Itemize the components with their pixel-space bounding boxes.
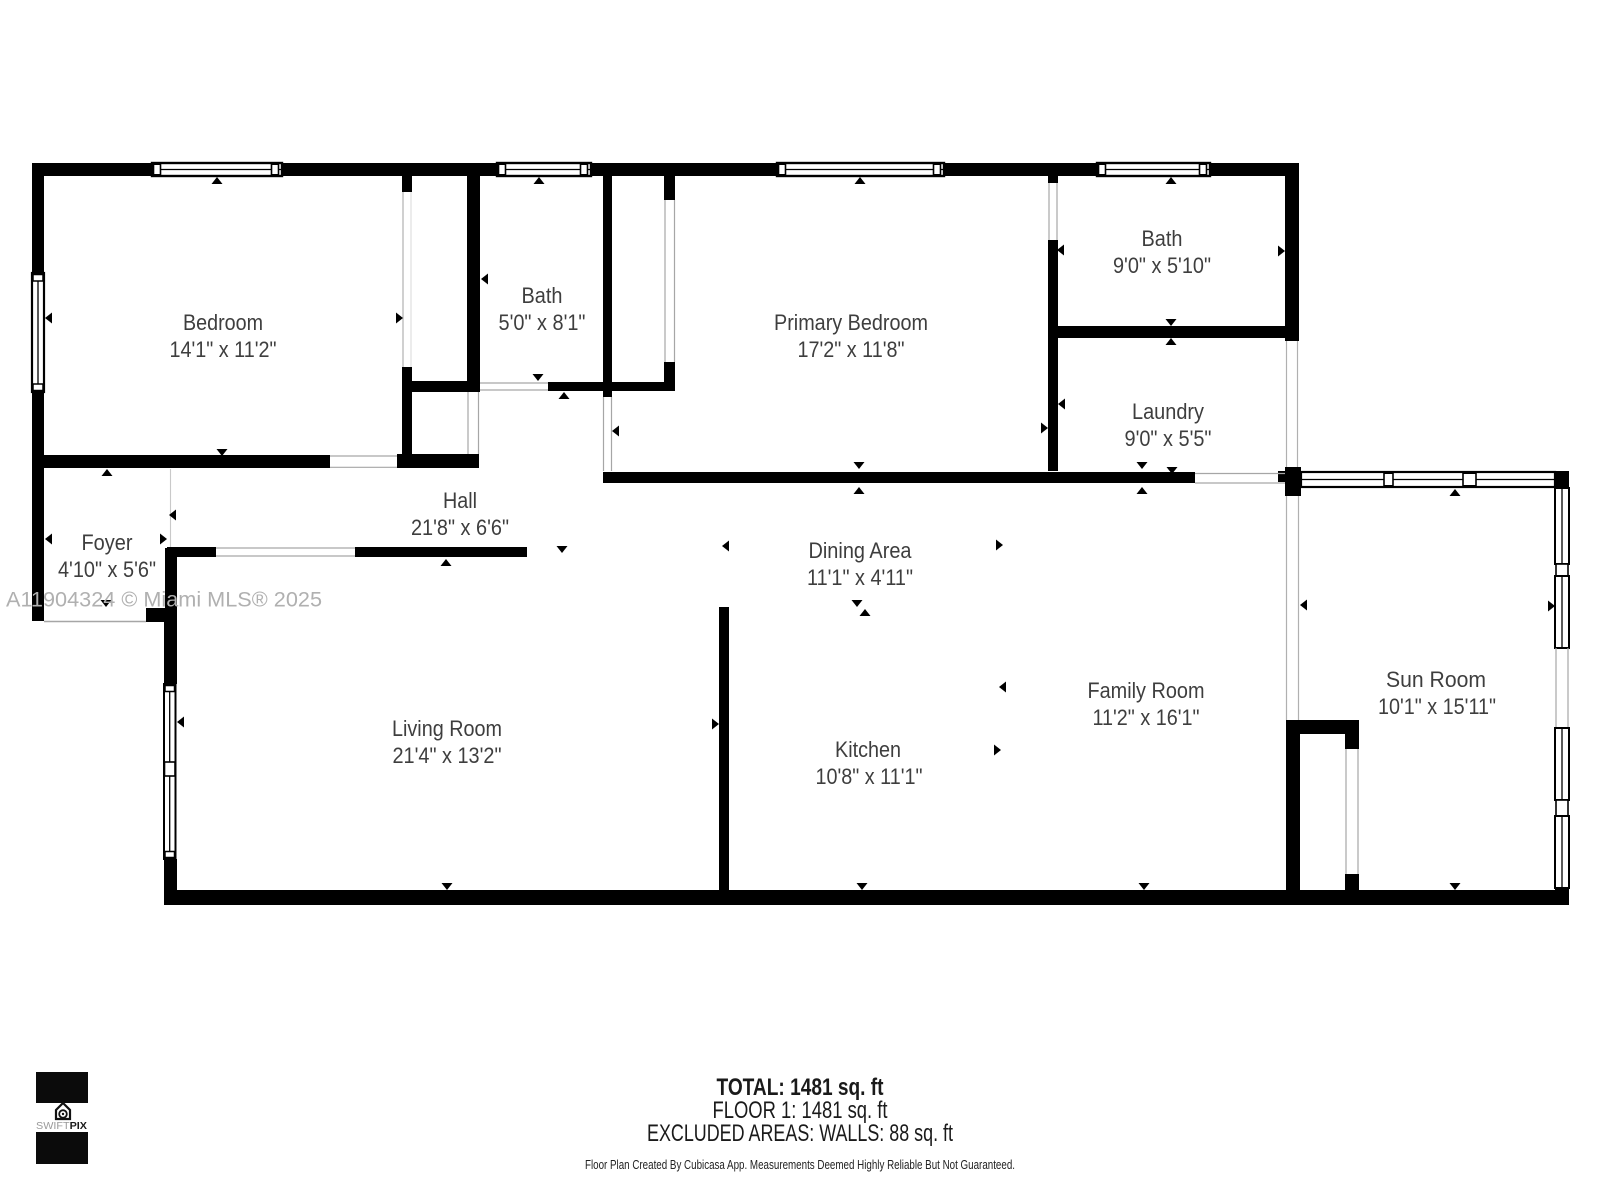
svg-text:Bath: Bath [1142, 226, 1183, 251]
svg-text:11'1" x 4'11": 11'1" x 4'11" [807, 565, 913, 590]
svg-text:Family Room: Family Room [1088, 678, 1205, 703]
svg-text:Floor Plan Created By Cubicasa: Floor Plan Created By Cubicasa App. Meas… [585, 1158, 1015, 1172]
svg-text:21'8" x 6'6": 21'8" x 6'6" [411, 515, 509, 540]
svg-text:9'0" x 5'10": 9'0" x 5'10" [1113, 253, 1211, 278]
svg-text:Kitchen: Kitchen [835, 737, 901, 762]
svg-text:10'8" x 11'1": 10'8" x 11'1" [816, 764, 923, 789]
svg-text:Bath: Bath [522, 283, 563, 308]
svg-text:Foyer: Foyer [82, 530, 133, 555]
svg-text:SWIFTPIX: SWIFTPIX [36, 1120, 87, 1132]
svg-text:A11904324 © Miami MLS® 2025: A11904324 © Miami MLS® 2025 [6, 589, 322, 612]
svg-text:4'10" x 5'6": 4'10" x 5'6" [58, 557, 156, 582]
svg-text:10'1" x 15'11": 10'1" x 15'11" [1378, 694, 1496, 719]
svg-text:Dining Area: Dining Area [809, 538, 913, 563]
svg-text:Hall: Hall [443, 488, 477, 513]
svg-text:EXCLUDED AREAS: WALLS: 88 sq.: EXCLUDED AREAS: WALLS: 88 sq. ft [647, 1120, 953, 1147]
svg-text:17'2" x 11'8": 17'2" x 11'8" [798, 337, 905, 362]
svg-text:Sun Room: Sun Room [1386, 667, 1486, 692]
svg-text:Living Room: Living Room [392, 716, 502, 741]
svg-text:21'4" x 13'2": 21'4" x 13'2" [393, 743, 502, 768]
svg-text:9'0" x 5'5": 9'0" x 5'5" [1125, 426, 1212, 451]
svg-text:Bedroom: Bedroom [183, 310, 263, 335]
svg-text:14'1" x 11'2": 14'1" x 11'2" [170, 337, 277, 362]
svg-text:5'0" x 8'1": 5'0" x 8'1" [499, 310, 586, 335]
svg-text:11'2" x 16'1": 11'2" x 16'1" [1093, 705, 1200, 730]
svg-text:Laundry: Laundry [1132, 399, 1204, 424]
svg-text:Primary Bedroom: Primary Bedroom [774, 310, 928, 335]
